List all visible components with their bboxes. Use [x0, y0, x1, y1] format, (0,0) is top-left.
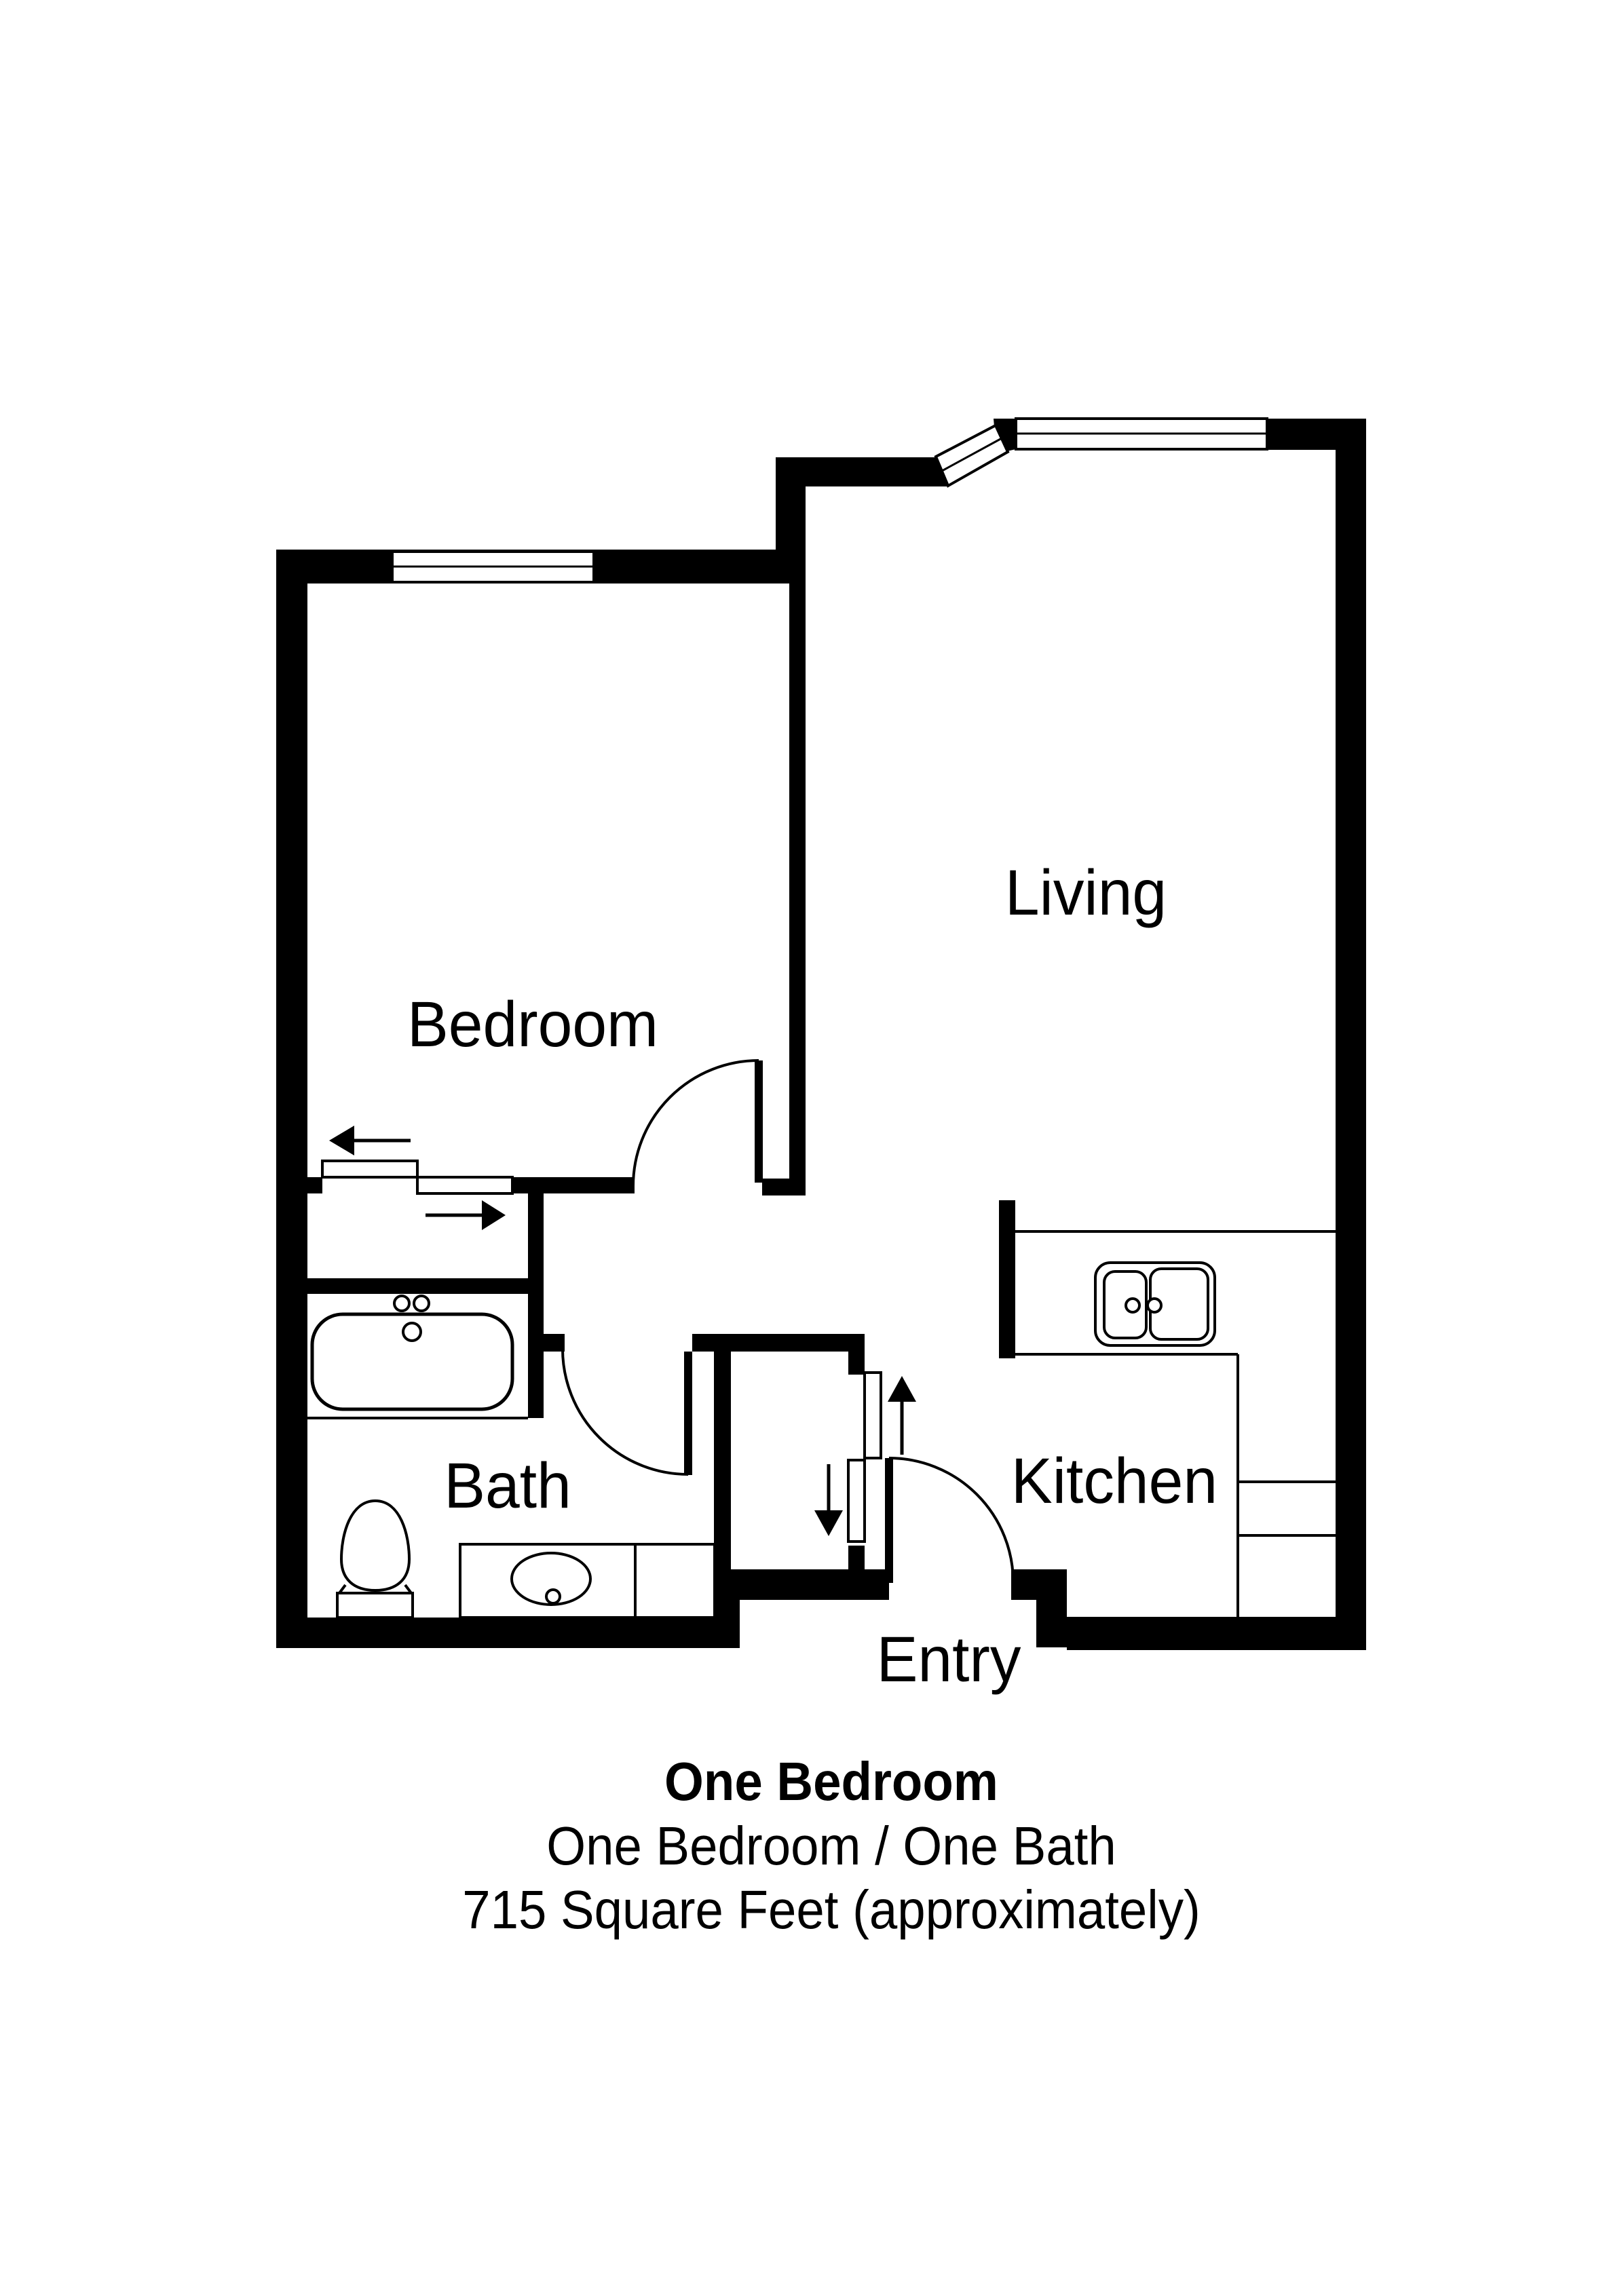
living-top-window: [1016, 419, 1267, 449]
floor-plan-page: Bedroom Living Bath Kitchen Entry One Be…: [0, 0, 1624, 2296]
bedroom-door-arc: [633, 1060, 759, 1186]
kitchen-counters: [1015, 1231, 1336, 1617]
slide-left-arrow-icon: [329, 1126, 411, 1155]
wall-entry-step: [1036, 1600, 1067, 1647]
doors: [563, 1060, 1013, 1583]
kitchen-sink-icon: [1095, 1263, 1215, 1345]
wall-entry-closet-jamb-bottom: [848, 1546, 865, 1600]
sliding-panel-bottom: [417, 1177, 512, 1193]
bedroom-label: Bedroom: [407, 988, 658, 1060]
toilet-icon: [337, 1501, 413, 1618]
entry-door-leaf: [885, 1458, 893, 1583]
caption-title: One Bedroom: [664, 1752, 998, 1812]
windows: [392, 419, 1267, 582]
sliding-panel-upper: [865, 1373, 881, 1458]
bedroom-door-leaf: [755, 1060, 763, 1183]
entry-closet-sliding-doors: [814, 1373, 916, 1542]
bedroom-closet-sliding-doors: [322, 1126, 512, 1230]
wall-living-topleft: [776, 457, 947, 486]
wall-bottom-west: [276, 1618, 740, 1648]
wall-entry-closet-west: [714, 1352, 731, 1569]
wall-kitchen-stub: [999, 1200, 1015, 1358]
bath-door-leaf: [684, 1352, 692, 1475]
wall-bedroom-bottom-mid: [514, 1177, 635, 1193]
wall-bedroom-door-jamb: [762, 1179, 806, 1195]
sliding-panel-lower: [848, 1460, 865, 1542]
entry-door: [885, 1458, 1013, 1583]
slide-down-arrow-icon: [814, 1464, 843, 1536]
caption-area: 715 Square Feet (approximately): [462, 1880, 1201, 1940]
bay-window-diagonal: [936, 425, 1008, 486]
floor-plan-drawing: Bedroom Living Bath Kitchen Entry One Be…: [0, 0, 1624, 2296]
caption: One Bedroom One Bedroom / One Bath 715 S…: [462, 1752, 1201, 1940]
living-label: Living: [1005, 856, 1167, 928]
bedroom-window: [392, 552, 594, 582]
wall-bedroom-bottom-stub-west: [304, 1177, 322, 1193]
slide-up-arrow-icon: [888, 1376, 916, 1455]
vanity-sink-icon: [460, 1544, 715, 1618]
wall-tub-alcove-top: [304, 1278, 528, 1294]
bath-door-arc: [563, 1349, 688, 1474]
wall-entry-closet-jamb-top: [848, 1352, 865, 1375]
bath-label: Bath: [444, 1449, 571, 1521]
entry-label: Entry: [877, 1623, 1021, 1695]
bathtub-icon: [312, 1296, 512, 1409]
wall-closet-east: [528, 1193, 544, 1418]
kitchen-label: Kitchen: [1011, 1444, 1217, 1516]
wall-left-exterior: [276, 552, 307, 1648]
wall-entry-jamb-east: [1011, 1569, 1067, 1600]
slide-right-arrow-icon: [426, 1200, 506, 1230]
bedroom-door: [633, 1060, 763, 1186]
sliding-panel-top: [322, 1161, 417, 1177]
wall-bedroom-living-divider: [789, 583, 806, 1195]
wall-right-exterior: [1336, 419, 1366, 1650]
wall-bottom-east: [1067, 1617, 1366, 1650]
caption-subtitle: One Bedroom / One Bath: [546, 1816, 1116, 1877]
wall-entry-closet-top: [692, 1334, 865, 1352]
entry-door-arc: [889, 1458, 1013, 1582]
bath-door: [563, 1349, 692, 1475]
